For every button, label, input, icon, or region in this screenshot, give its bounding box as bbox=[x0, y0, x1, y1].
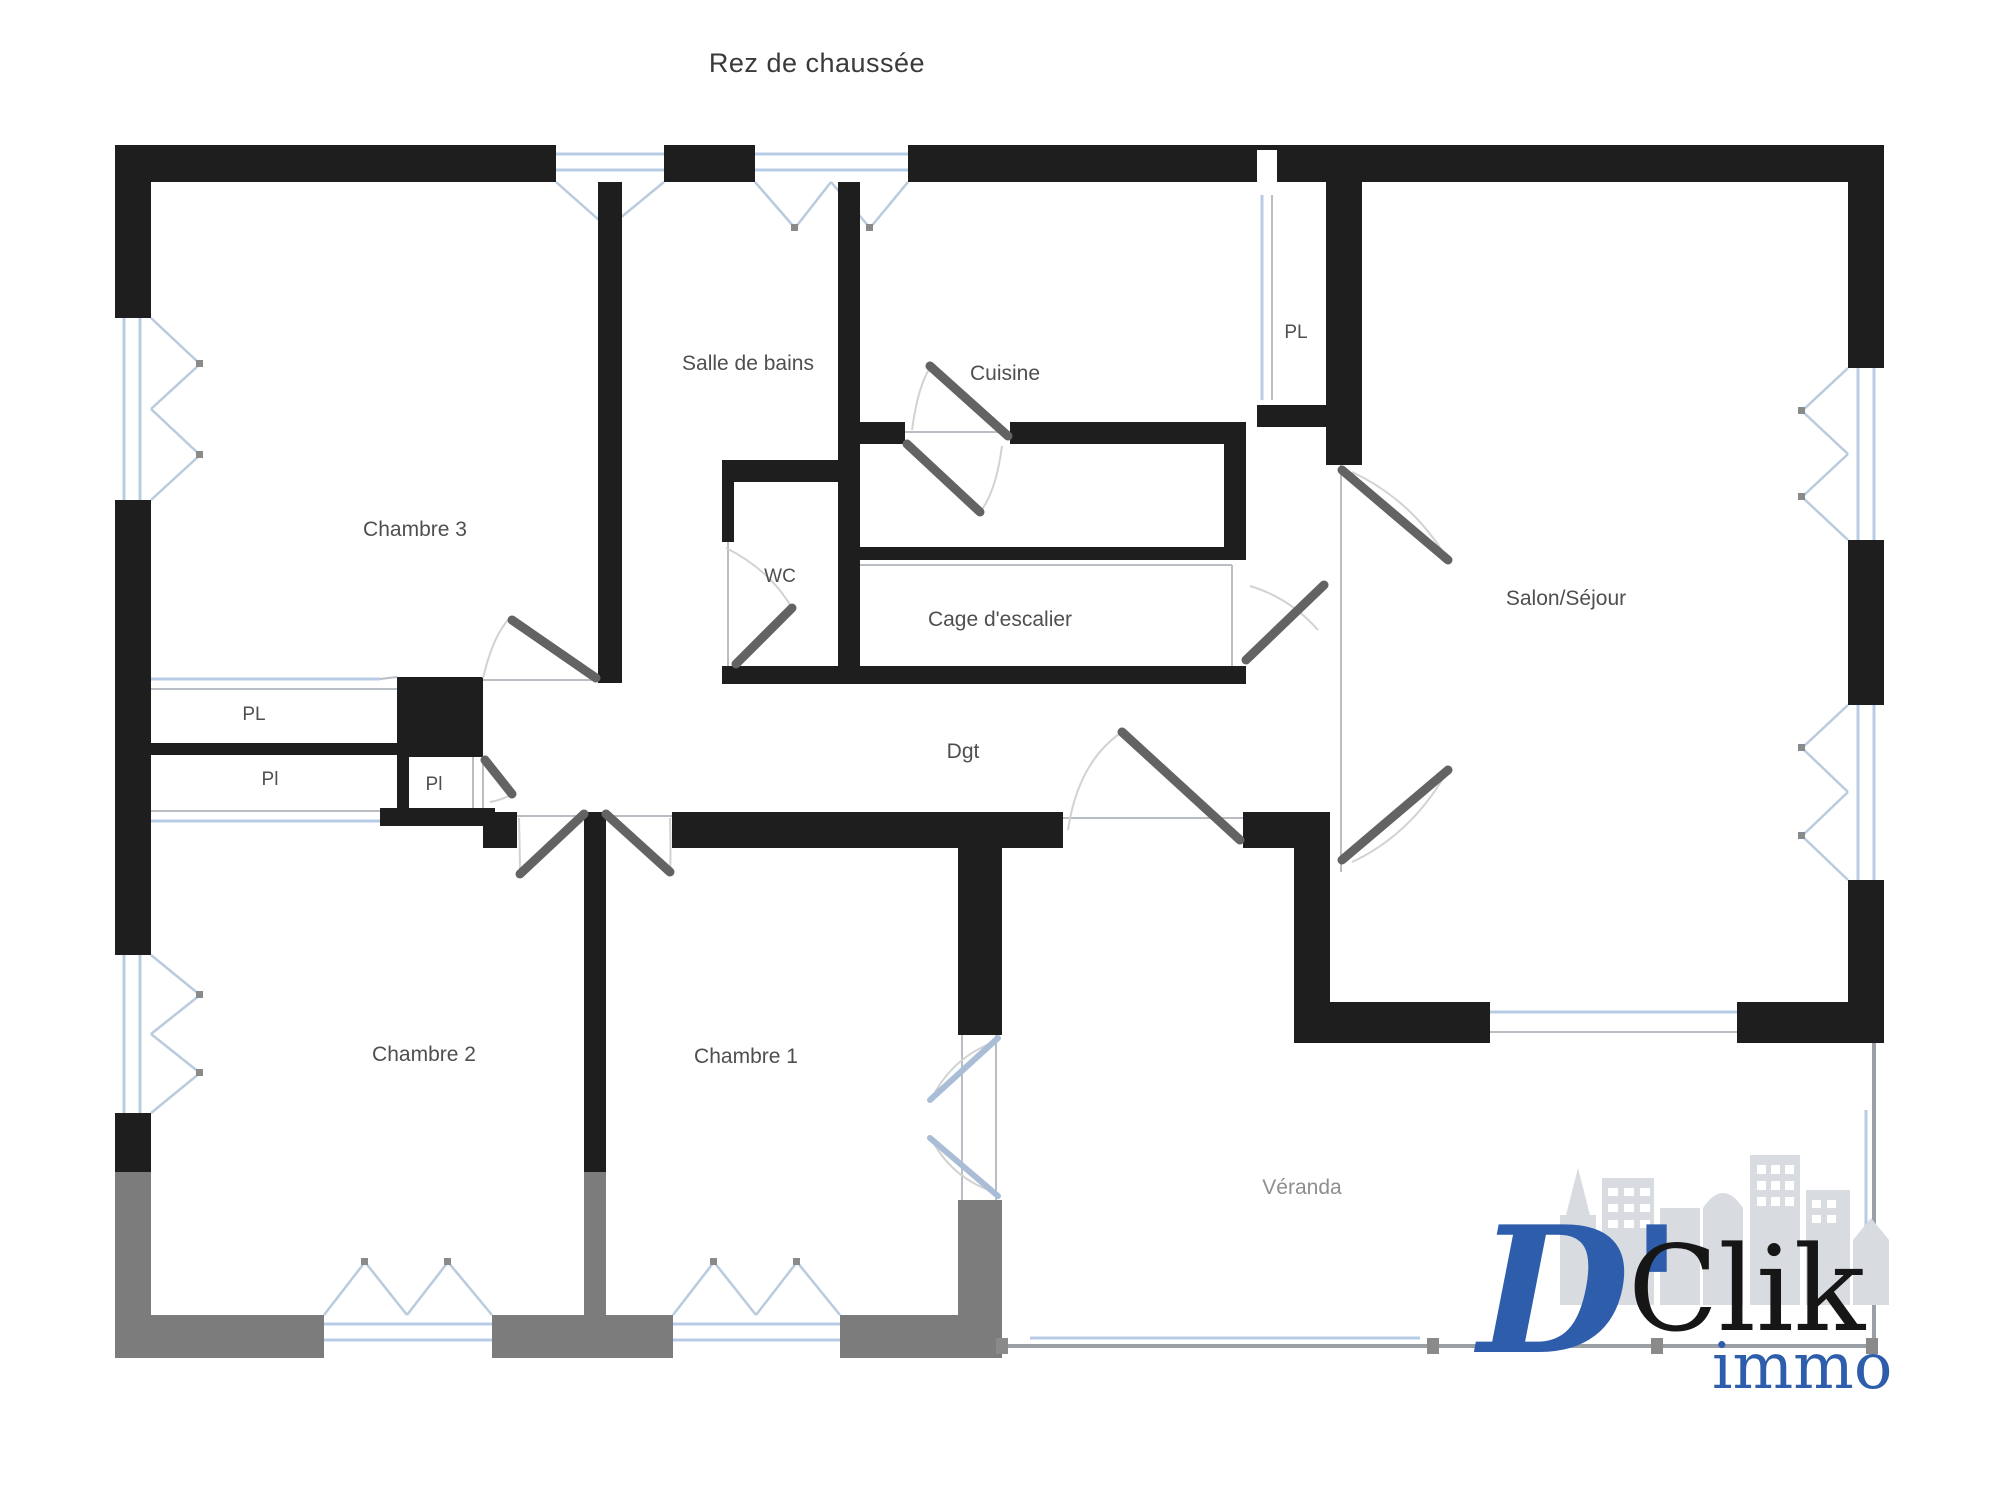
room-label-pl-left-1: PL bbox=[242, 704, 265, 725]
window-bottom-chambre1 bbox=[673, 1258, 840, 1340]
window-left-chambre2 bbox=[124, 955, 203, 1113]
window-left-chambre3 bbox=[124, 318, 203, 500]
window-bottom-chambre2 bbox=[324, 1258, 492, 1340]
window-top-kitchen bbox=[755, 154, 908, 231]
room-label-salle-de-bains: Salle de bains bbox=[682, 352, 814, 375]
room-label-cage-escalier: Cage d'escalier bbox=[928, 608, 1072, 631]
room-label-salon: Salon/Séjour bbox=[1506, 587, 1626, 610]
room-label-chambre2: Chambre 2 bbox=[372, 1043, 476, 1066]
room-label-chambre1: Chambre 1 bbox=[694, 1045, 798, 1068]
room-label-wc: WC bbox=[764, 566, 796, 587]
closet-pl-top-right bbox=[1262, 195, 1272, 400]
room-label-chambre3: Chambre 3 bbox=[363, 518, 467, 541]
doors bbox=[483, 366, 1448, 1200]
logo-dclik-immo: D' Clik immo bbox=[1473, 1155, 1892, 1404]
floorplan-page: Rez de chaussée Chambre 3 Salle de bains… bbox=[0, 0, 2016, 1512]
window-right-salon-2 bbox=[1798, 705, 1874, 880]
interior-walls bbox=[151, 182, 1884, 1315]
logo-immo-part: immo bbox=[1712, 1330, 1892, 1404]
room-label-pl-small: Pl bbox=[426, 774, 443, 795]
room-label-dgt: Dgt bbox=[947, 740, 980, 763]
window-right-salon-1 bbox=[1798, 368, 1874, 540]
page-title: Rez de chaussée bbox=[709, 48, 925, 78]
window-salon-bottom bbox=[1490, 1012, 1737, 1032]
room-label-cuisine: Cuisine bbox=[970, 362, 1040, 385]
room-label-pl-top: PL bbox=[1284, 322, 1307, 343]
room-label-pl-left-2: Pl bbox=[262, 769, 279, 790]
room-label-veranda: Véranda bbox=[1262, 1176, 1342, 1199]
floorplan-svg: Rez de chaussée Chambre 3 Salle de bains… bbox=[0, 0, 2016, 1512]
